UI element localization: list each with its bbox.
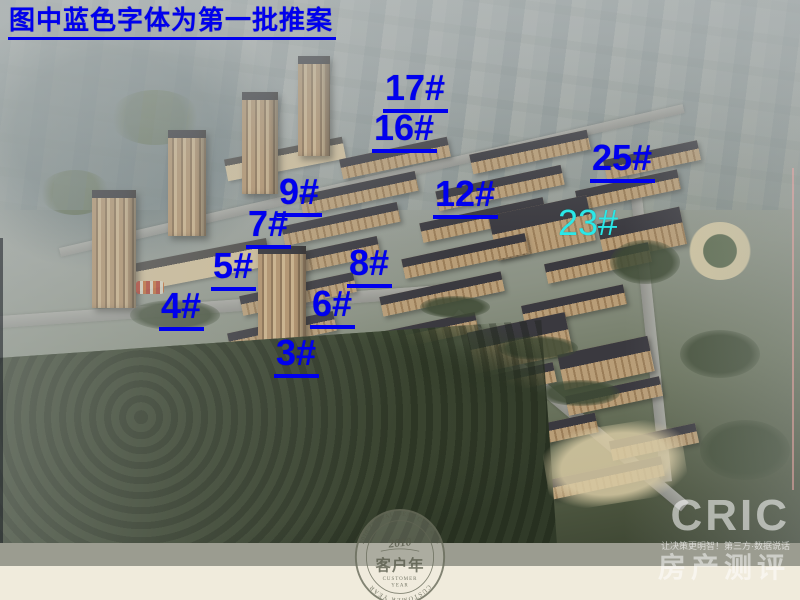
cric-product-name: 房产测评 xyxy=(658,554,790,582)
building-label-16: 16# xyxy=(372,110,437,153)
building-label-3: 3# xyxy=(274,335,319,378)
building-label-7: 7# xyxy=(246,206,291,249)
building-label-23: 23# xyxy=(558,205,618,241)
stamp-subtitle-2: YEAR xyxy=(391,583,408,588)
building-labels: 17#16#25#9#12#7#23#8#5#6#4#3# xyxy=(0,0,800,543)
presentation-slide: 2010 ZENDAI IDEAL CITY 2010 CUSTOMER YEA… xyxy=(0,0,800,600)
stamp-subtitle-1: CUSTOMER xyxy=(383,577,418,582)
building-label-4: 4# xyxy=(159,288,204,331)
legend-note: 图中蓝色字体为第一批推案 xyxy=(8,6,336,40)
building-label-25: 25# xyxy=(590,140,655,183)
building-label-6: 6# xyxy=(310,286,355,329)
building-label-5: 5# xyxy=(211,248,256,291)
stamp-title-cn: 客户年 xyxy=(376,555,425,574)
building-label-12: 12# xyxy=(433,176,498,219)
building-label-8: 8# xyxy=(347,245,392,288)
